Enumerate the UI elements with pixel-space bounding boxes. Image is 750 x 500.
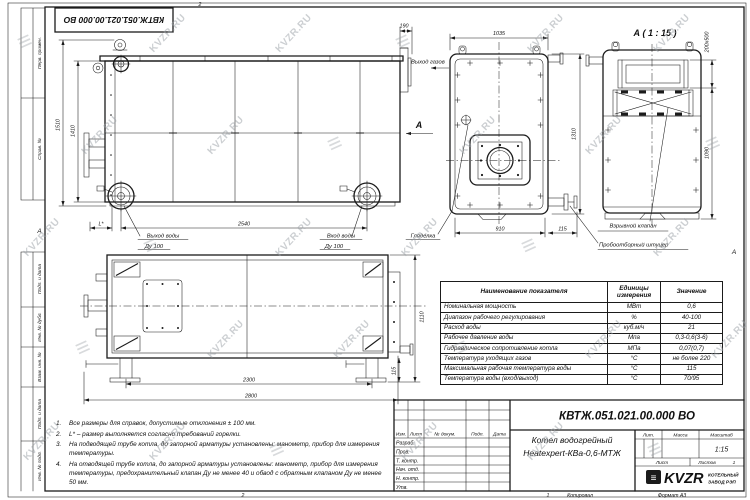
- product-name-line2: Heatexpert-КВа-0,6-МТЖ: [523, 448, 622, 458]
- boiler-body: [105, 61, 400, 202]
- titleblock-docnumber: КВТЖ.051.021.00.000 ВО: [559, 411, 695, 423]
- dim-2540: 2540: [237, 222, 250, 228]
- zone-mark-bottom: 2: [241, 493, 245, 499]
- company-abbr: KVZR: [664, 471, 704, 487]
- notes: 1.Все размеры для справок, допустимые от…: [56, 419, 388, 489]
- spec-row: Рабочее давление водыМпа0,3-0,6(3-6): [441, 333, 723, 343]
- scale-value: 1:15: [715, 447, 729, 454]
- view-side: 2300 2800 1110 115: [80, 255, 426, 404]
- view-detail-a: А ( 1 : 15 ) 200x500 1090 Взрыв: [570, 28, 716, 250]
- dim-200x500: 200x500: [705, 32, 711, 54]
- spec-col-value: Значение: [661, 282, 723, 303]
- frame-label: Подп. и дата: [37, 264, 43, 294]
- spec-table: Наименование показателя Единицы измерени…: [440, 281, 723, 385]
- lifting-lug: [113, 40, 127, 51]
- note-item: 4.На отводящей трубе котла, до запорной …: [56, 460, 388, 487]
- section-marker-a: А: [415, 120, 423, 130]
- detail-title: А ( 1 : 15 ): [632, 28, 676, 38]
- label-explosion-valve: Взрывной клапан: [609, 223, 657, 230]
- frame-label: Инв. № подл.: [37, 451, 43, 481]
- company-logo: ≡ KVZR КОТЕЛЬНЫЙ ЗАВОД РЭП: [646, 470, 739, 487]
- dim-1035: 1035: [493, 31, 506, 37]
- note-item: 1.Все размеры для справок, допустимые от…: [56, 419, 388, 428]
- drawing-sheet: Перв. примен. Справ. № Подп. и дата Инв.…: [0, 0, 750, 500]
- zone-mark-left: А: [36, 228, 41, 235]
- label-sight-glass: Гляделка: [411, 234, 437, 240]
- frame-label: Подп. и дата: [37, 399, 43, 429]
- label-water-inlet: Вход воды: [327, 234, 356, 240]
- scale-label: Масштаб: [710, 433, 733, 439]
- row-prov: Пров.: [396, 450, 410, 456]
- col-date: Дата: [492, 432, 506, 438]
- gas-outlet-duct: [400, 48, 411, 92]
- company-name-line1: КОТЕЛЬНЫЙ: [708, 471, 739, 478]
- spec-row: Диапазон рабочего регулирования%40-100: [441, 313, 723, 323]
- burner-mount: [470, 135, 530, 185]
- label-water-outlet-dn: Ду 100: [144, 244, 164, 250]
- label-water-outlet: Выход воды: [147, 234, 180, 240]
- mass-label: Масса: [673, 433, 688, 439]
- dim-1090: 1090: [705, 147, 711, 159]
- note-number: 1.: [56, 419, 69, 428]
- dim-1110: 1110: [420, 311, 426, 322]
- frame-label: Взам. инв. №: [37, 352, 43, 382]
- col-list: Лист: [409, 432, 422, 438]
- spec-col-units: Единицы измерения: [608, 282, 661, 303]
- row-nkontr: Н. контр.: [396, 476, 419, 482]
- sheets-value: 1: [733, 460, 736, 466]
- sheet-label: Лист: [655, 460, 668, 466]
- format-note: Формат А3: [658, 493, 686, 499]
- title-block: Изм. Лист № докум. Подп. Дата Разраб. Пр…: [394, 400, 744, 491]
- dim-1310: 1310: [572, 128, 578, 140]
- company-name-line2: ЗАВОД РЭП: [708, 480, 736, 485]
- dim-190: 190: [400, 24, 409, 30]
- spec-col-name: Наименование показателя: [441, 282, 608, 303]
- sheets-label: Листов: [697, 460, 716, 466]
- note-text: Все размеры для справок, допустимые откл…: [69, 419, 256, 428]
- frame-label: Перв. примен.: [37, 37, 43, 69]
- zone-mark-bottom: 1: [547, 493, 550, 499]
- spec-row: Температура уходящих газов°Сне более 220: [441, 354, 723, 364]
- frame-label: Инв. № дубл.: [37, 312, 43, 342]
- label-sampling-fitting: Пробоотборный штуцер: [599, 242, 669, 249]
- note-text: На отводящей трубе котла, до запорной ар…: [69, 460, 388, 487]
- copied-note: Копировал: [567, 493, 593, 499]
- dim-2300: 2300: [242, 378, 255, 384]
- dim-115-foot: 115: [392, 366, 398, 376]
- dim-910: 910: [496, 227, 505, 233]
- note-number: 2.: [56, 430, 69, 439]
- note-text: L* – размер выполняется согласно требова…: [69, 430, 241, 439]
- view-front-elevation: 1510 1410 190 L* 2540 Выход воды Ду 100 …: [56, 24, 450, 251]
- dim-1410: 1410: [71, 125, 77, 137]
- spec-table-wrap: Наименование показателя Единицы измерени…: [440, 281, 722, 385]
- frame-label: Справ. №: [37, 138, 43, 160]
- note-text: На подводящей трубе котла, до запорной а…: [69, 440, 388, 458]
- top-flange: [112, 55, 130, 73]
- dim-2800: 2800: [244, 394, 257, 400]
- label-gas-outlet: Выход газов: [411, 60, 445, 66]
- spec-row: Гидравлическое сопротивление котлаМПа0,0…: [441, 344, 723, 354]
- col-docnum: № докум.: [434, 432, 455, 438]
- spec-row: Максимальная рабочая температура воды°С1…: [441, 364, 723, 374]
- spec-header-row: Наименование показателя Единицы измерени…: [441, 282, 723, 303]
- zone-mark-top: 2: [198, 2, 202, 8]
- note-item: 3.На подводящей трубе котла, до запорной…: [56, 440, 388, 458]
- col-izm: Изм.: [396, 432, 406, 438]
- water-outlet-nozzle: [97, 181, 136, 211]
- label-water-inlet-dn: Ду 100: [324, 244, 344, 250]
- row-nachotd: Нач. отд.: [396, 467, 419, 473]
- note-number: 4.: [56, 460, 69, 487]
- spec-row: Температура воды (вход/выход)°С70/95: [441, 375, 723, 385]
- product-name-line1: Котел водогрейный: [532, 435, 613, 445]
- zone-mark-right: А: [731, 249, 736, 256]
- note-number: 3.: [56, 440, 69, 458]
- dim-1510: 1510: [56, 119, 62, 131]
- row-tkontr: Т. контр.: [396, 459, 418, 465]
- sampling-fitting: [548, 194, 577, 210]
- note-item: 2.L* – размер выполняется согласно требо…: [56, 430, 388, 439]
- dim-115: 115: [558, 227, 568, 233]
- row-razrab: Разраб.: [396, 441, 415, 447]
- spec-row: Расход водыкуб.м/ч21: [441, 323, 723, 333]
- sight-glass: [461, 115, 471, 125]
- water-inlet-nozzle: [340, 181, 382, 211]
- col-sign: Подп.: [471, 432, 484, 438]
- lit-label: Лит.: [642, 433, 654, 439]
- explosion-valve: [613, 90, 693, 116]
- side-body: [107, 255, 388, 358]
- dim-L: L*: [98, 222, 104, 228]
- side-pipes: [84, 133, 105, 177]
- logo-glyph-icon: ≡: [651, 473, 657, 484]
- spec-row: Номинальная мощностьМВт0,6: [441, 303, 723, 313]
- row-utv: Утв.: [396, 485, 408, 491]
- top-stamp-docnumber: КВТЖ.051.021.00.000 ВО: [63, 15, 164, 25]
